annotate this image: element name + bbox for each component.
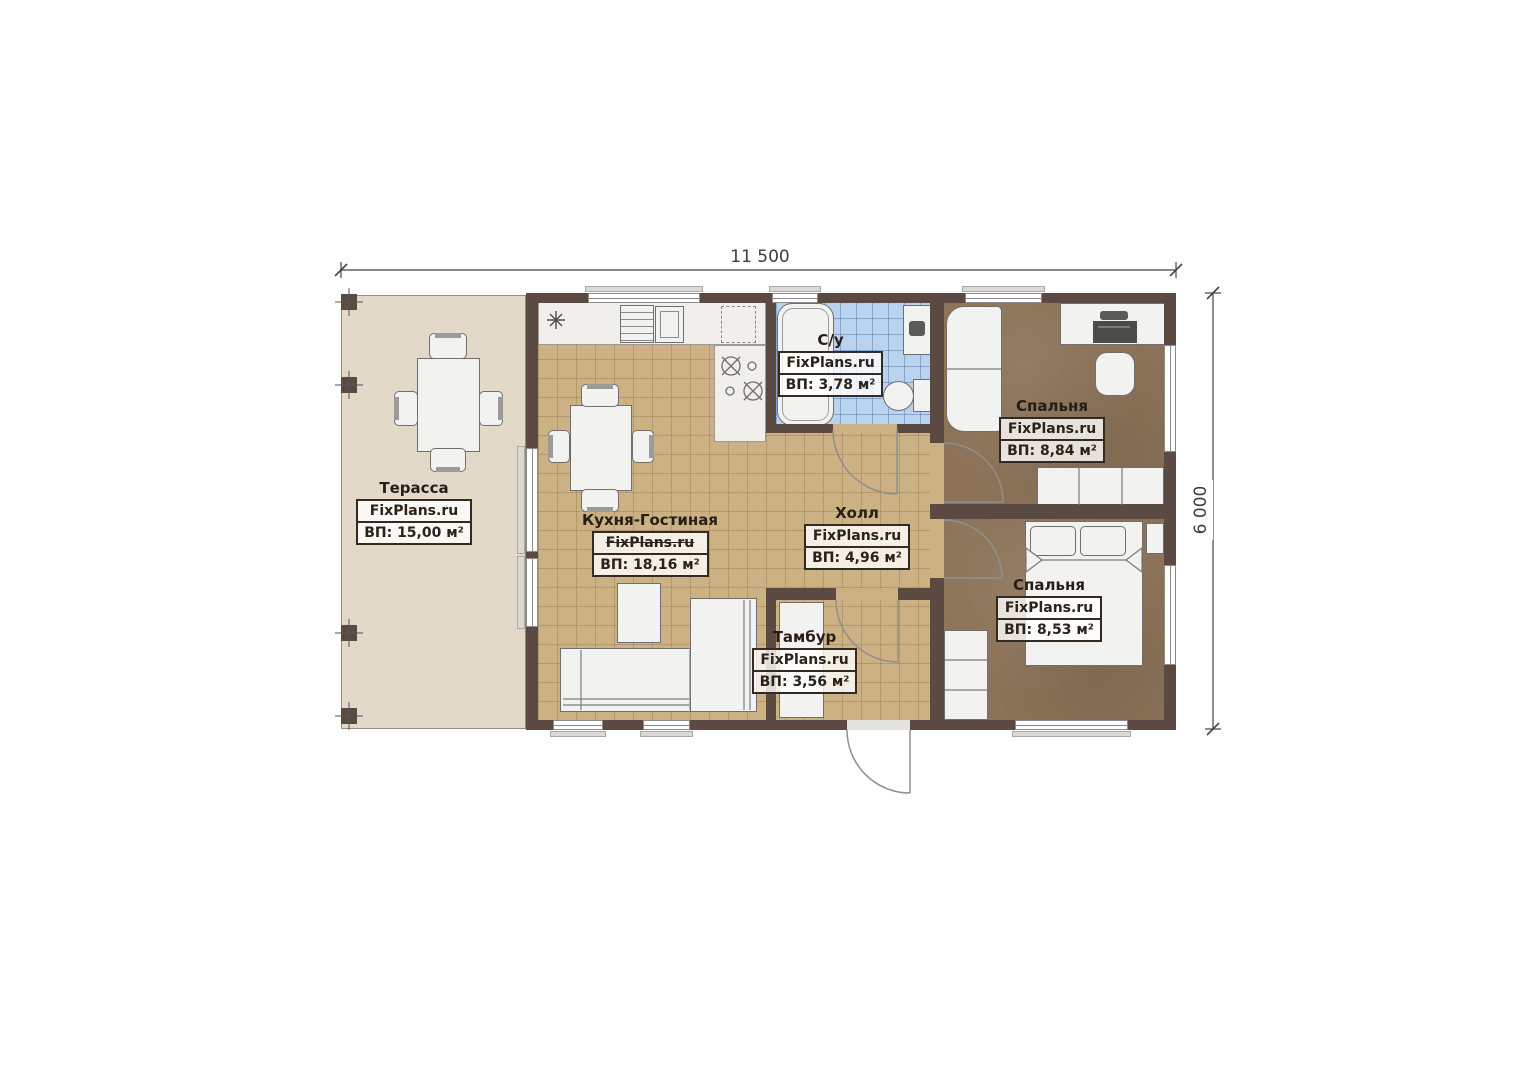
door-opening-bedroom-bottom [930, 519, 944, 578]
room-info-box: FixPlans.ru ВП: 8,53 м² [996, 596, 1102, 642]
room-label-hall: Холл FixPlans.ru ВП: 4,96 м² [810, 504, 904, 570]
room-name: Терасса [379, 479, 448, 497]
kitchen-counter-corner [714, 345, 766, 442]
dishwasher-outline [721, 306, 756, 343]
dresser [944, 630, 988, 720]
window-right-bottom [1164, 565, 1176, 665]
room-info-box: FixPlans.ru ВП: 18,16 м² [592, 531, 709, 577]
terrace-chair [479, 391, 503, 426]
room-name: Кухня-Гостиная [582, 511, 718, 529]
terrace-column [341, 708, 357, 724]
room-info-box: FixPlans.ru ВП: 15,00 м² [356, 499, 472, 545]
bathroom-accessory [909, 321, 925, 336]
kitchen-drawers [620, 305, 654, 343]
pillow [1030, 526, 1076, 556]
room-info-box: FixPlans.ru ВП: 3,78 м² [778, 351, 884, 397]
room-label-bedroom-top: Спальня FixPlans.ru ВП: 8,84 м² [1005, 397, 1099, 463]
window-living-2 [643, 720, 690, 730]
window-bedroom-top [965, 293, 1042, 303]
room-label-bedroom-bottom: Спальня FixPlans.ru ВП: 8,53 м² [1002, 576, 1096, 642]
door-opening-vestibule [836, 588, 898, 600]
watermark: FixPlans.ru [998, 598, 1100, 620]
room-name: Тамбур [773, 628, 837, 646]
room-area: ВП: 4,96 м² [806, 548, 908, 568]
room-area: ВП: 15,00 м² [358, 523, 470, 543]
bed-single [946, 306, 1002, 432]
terrace-chair [429, 333, 467, 359]
dining-chair [581, 489, 619, 512]
room-label-terrace: Терасса FixPlans.ru ВП: 15,00 м² [354, 479, 474, 545]
terrace-column [341, 625, 357, 641]
room-info-box: FixPlans.ru ВП: 3,56 м² [752, 648, 858, 694]
watermark: FixPlans.ru [806, 526, 908, 548]
desk [1060, 303, 1166, 345]
terrace-column [341, 377, 357, 393]
wardrobe [1037, 467, 1164, 506]
dining-chair [581, 384, 619, 407]
window-sill [550, 731, 606, 737]
terrace-chair [430, 448, 466, 472]
window-bathroom [772, 293, 818, 303]
room-area: ВП: 18,16 м² [594, 555, 707, 575]
window-terrace-side-2 [526, 558, 538, 627]
dimension-height-label: 6 000 [1191, 480, 1213, 540]
terrace-chair [394, 391, 418, 426]
toilet-bowl [883, 381, 914, 411]
window-terrace-side-1 [526, 448, 538, 552]
toilet-tank [913, 379, 931, 412]
floor-plan: 11 500 6 000 Терасса FixPlans.ru ВП: 15,… [0, 0, 1528, 1080]
window-right-top [1164, 345, 1176, 452]
wall-bathroom-left [766, 293, 776, 432]
window-living-1 [553, 720, 603, 730]
sofa-chaise [690, 598, 757, 712]
room-name: С/у [817, 331, 843, 349]
room-label-vestibule: Тамбур FixPlans.ru ВП: 3,56 м² [757, 628, 852, 694]
terrace-column [341, 294, 357, 310]
window-sill [962, 286, 1045, 292]
window-sill [585, 286, 703, 292]
room-area: ВП: 3,56 м² [754, 672, 856, 692]
desk-chair [1095, 352, 1135, 396]
entrance-door-opening [847, 720, 910, 730]
room-info-box: FixPlans.ru ВП: 8,84 м² [999, 417, 1105, 463]
watermark: FixPlans.ru [358, 501, 470, 523]
room-label-bathroom: С/у FixPlans.ru ВП: 3,78 м² [782, 331, 879, 397]
window-sill [1012, 731, 1131, 737]
coffee-table [617, 583, 661, 643]
watermark: FixPlans.ru [780, 353, 882, 375]
room-area: ВП: 3,78 м² [780, 375, 882, 395]
window-bedroom-bottom [1015, 720, 1128, 730]
room-info-box: FixPlans.ru ВП: 4,96 м² [804, 524, 910, 570]
room-name: Спальня [1013, 576, 1085, 594]
dining-table [570, 405, 632, 491]
window-sill [640, 731, 693, 737]
terrace-table [417, 358, 480, 452]
watermark: FixPlans.ru [1001, 419, 1103, 441]
window-sill [769, 286, 821, 292]
pillow [1080, 526, 1126, 556]
dining-chair [548, 430, 570, 463]
wall-bedroom-divider [930, 504, 1176, 519]
watermark: FixPlans.ru [594, 533, 707, 555]
kitchen-sink [655, 306, 684, 343]
room-label-kitchen-living: Кухня-Гостиная FixPlans.ru ВП: 18,16 м² [585, 511, 715, 577]
room-name: Спальня [1016, 397, 1088, 415]
room-area: ВП: 8,53 м² [998, 620, 1100, 640]
room-area: ВП: 8,84 м² [1001, 441, 1103, 461]
window-kitchen [588, 293, 700, 303]
window-sill [517, 446, 525, 554]
dining-chair [632, 430, 654, 463]
watermark: FixPlans.ru [754, 650, 856, 672]
door-opening-bedroom-top [930, 443, 944, 504]
door-opening-bathroom [833, 424, 897, 433]
room-name: Холл [835, 504, 879, 522]
nightstand [1146, 523, 1164, 554]
dimension-width-label: 11 500 [713, 247, 807, 267]
window-sill [517, 556, 525, 629]
